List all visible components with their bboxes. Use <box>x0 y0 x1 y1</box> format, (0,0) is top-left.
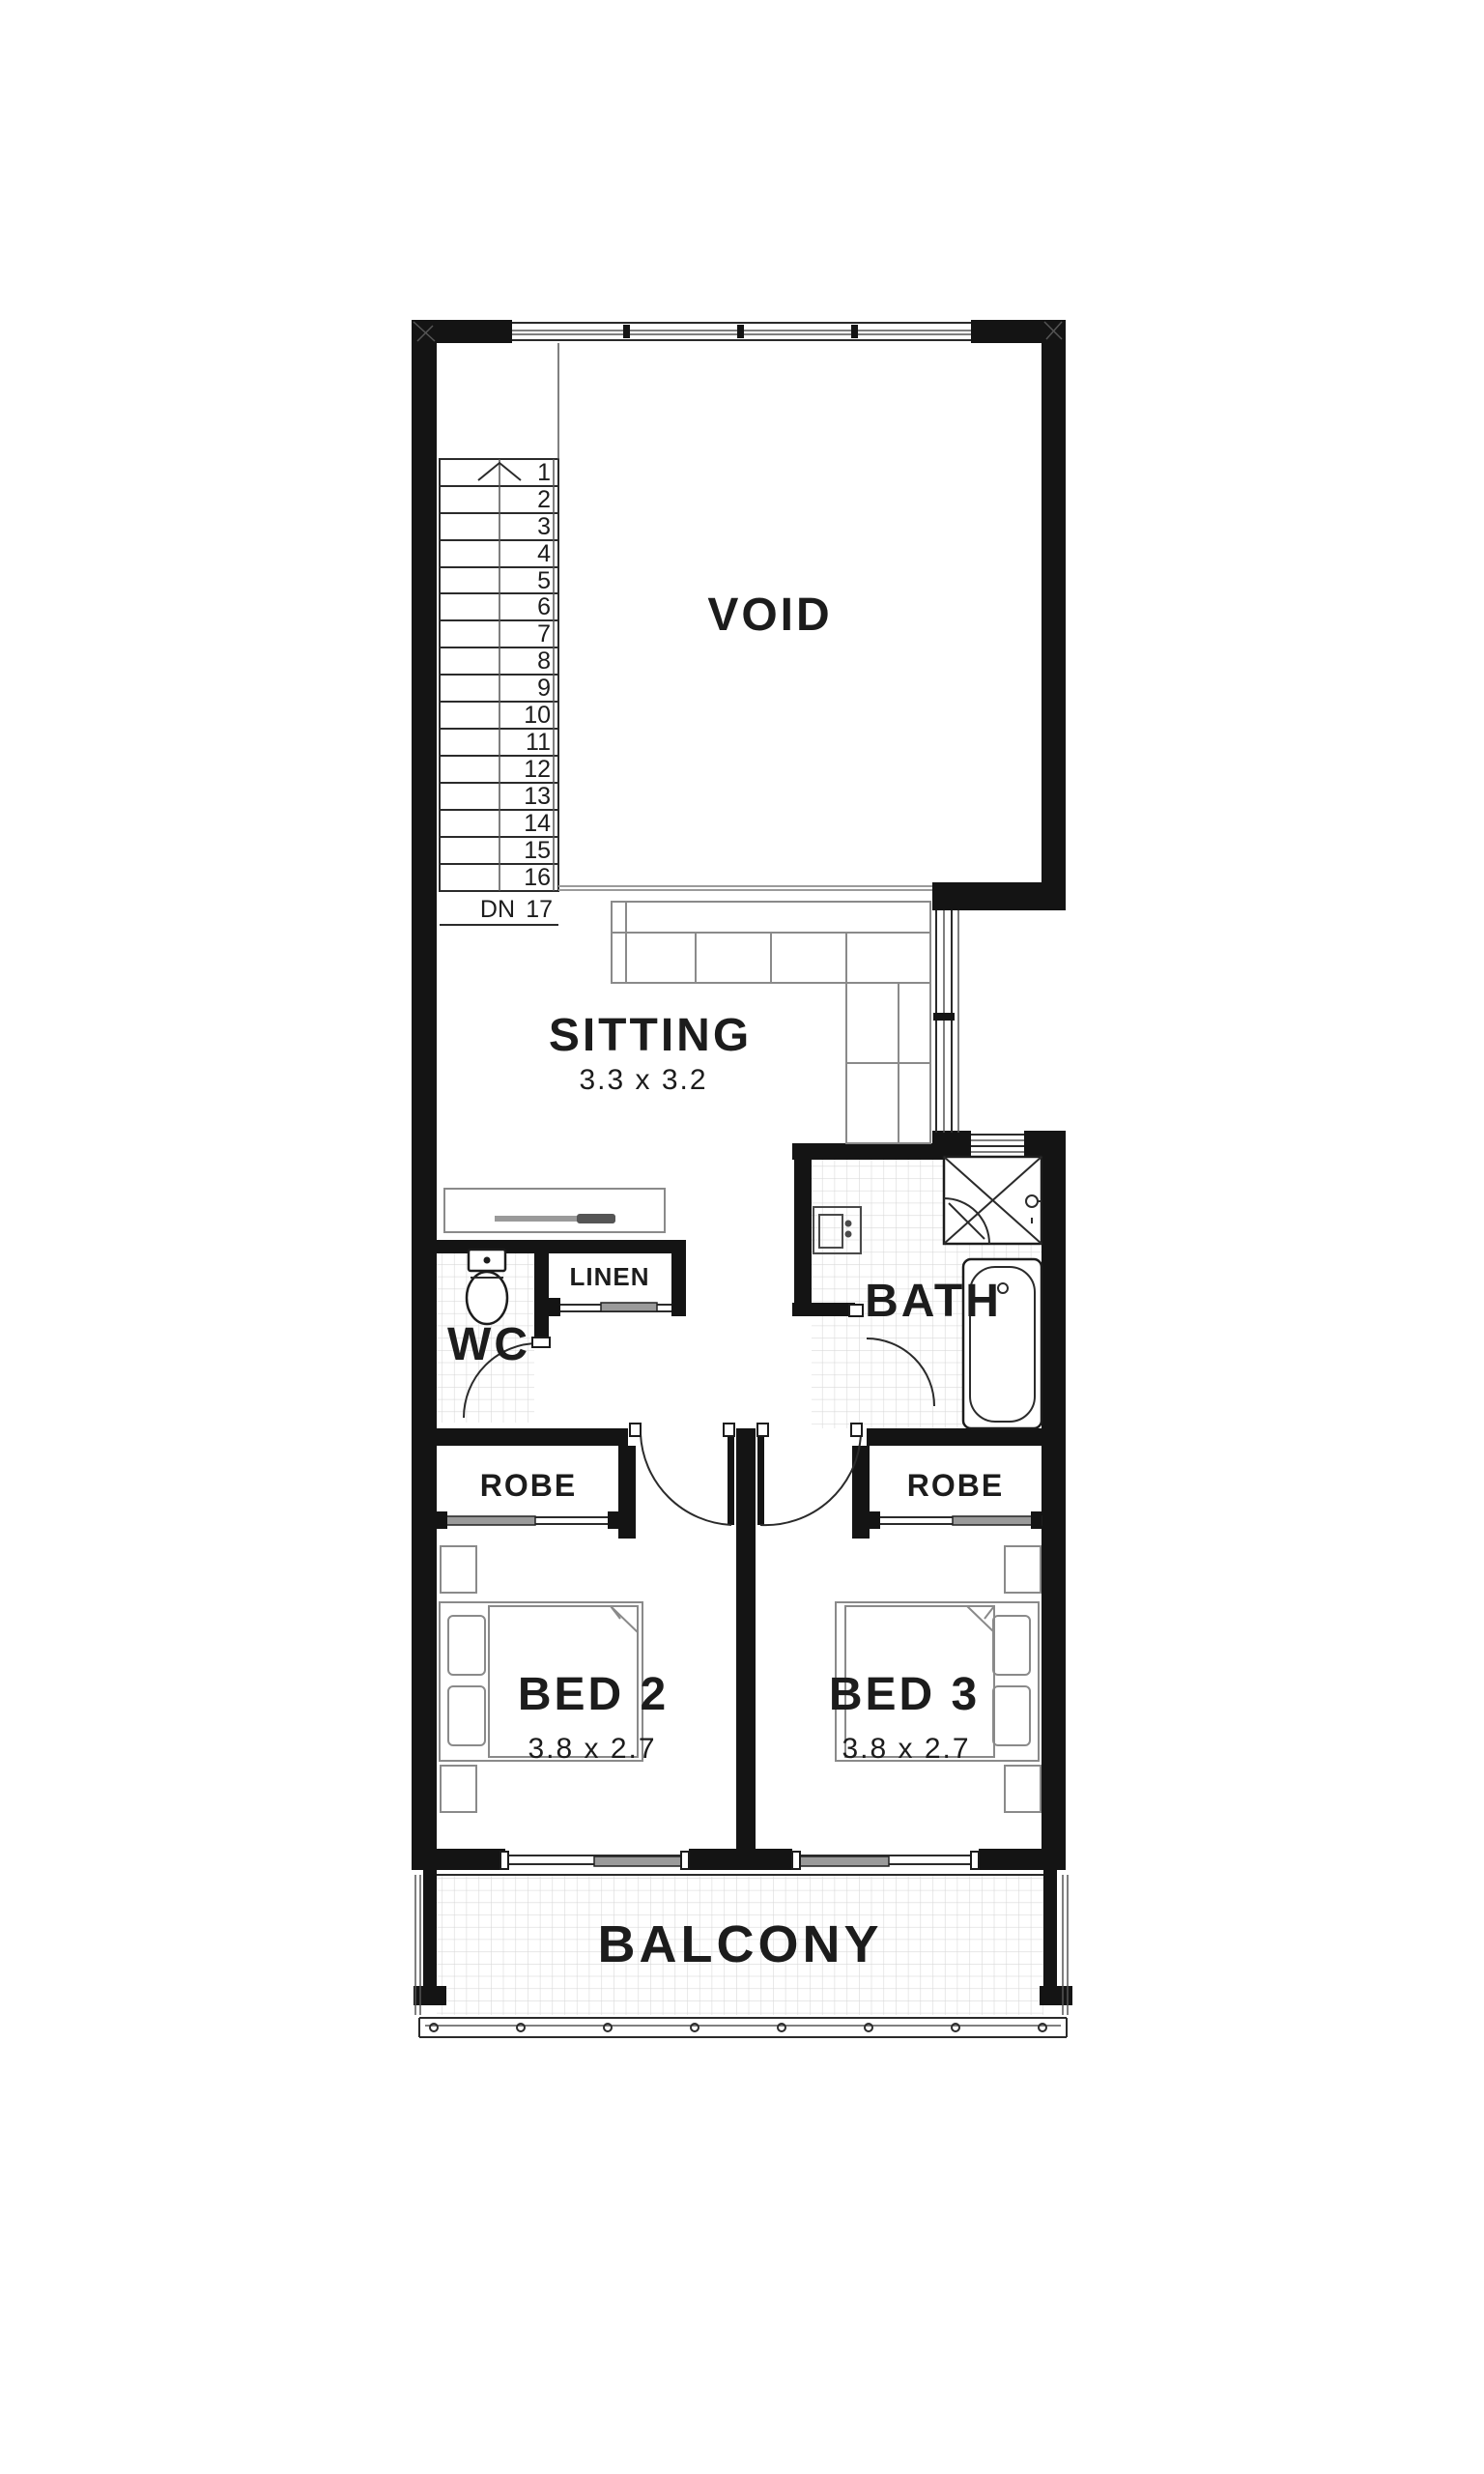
stair-number: 16 <box>524 864 551 891</box>
stair-number: 8 <box>537 647 551 675</box>
bed3-pillow <box>993 1616 1030 1675</box>
shower <box>944 1157 1042 1244</box>
robe-right-top-wall <box>867 1428 1066 1446</box>
wc-right-wall <box>534 1253 549 1342</box>
bed2-dimensions: 3.8 x 2.7 <box>528 1733 656 1765</box>
bath-window <box>971 1135 1024 1152</box>
robe-right-closet <box>870 1511 1042 1529</box>
balcony-side-pier-right <box>1043 1870 1057 1993</box>
wc-label: WC <box>447 1319 530 1370</box>
bed3-dimensions: 3.8 x 2.7 <box>842 1733 970 1765</box>
bed2-pillow <box>448 1686 485 1745</box>
stair-number: 2 <box>537 486 551 513</box>
sitting-dimensions: 3.3 x 3.2 <box>579 1064 707 1096</box>
bed2-side-table-bottom <box>441 1766 476 1812</box>
balcony-wall-pier-right <box>979 1849 1066 1870</box>
stair-number: 1 <box>537 459 551 486</box>
bath-left-wall <box>794 1143 812 1303</box>
robe-left-top-wall <box>437 1428 628 1446</box>
stair-number: 5 <box>537 567 551 594</box>
robe-left-label: ROBE <box>480 1468 577 1503</box>
tv-body <box>577 1214 615 1223</box>
linen-right-return-wall <box>671 1240 686 1316</box>
bed2-pillow <box>448 1616 485 1675</box>
stair-number-17: 17 <box>526 896 553 923</box>
bed3-side-table-bottom <box>1005 1766 1041 1812</box>
stair-down-label: DN <box>480 896 515 923</box>
tv-unit <box>444 1189 665 1232</box>
void-bottom-right-wall <box>932 882 1066 910</box>
linen-label: LINEN <box>570 1262 650 1291</box>
sitting-right-window <box>933 910 958 1133</box>
right-outer-wall-upper <box>1042 320 1066 910</box>
floor-plan-drawing: 1 2 3 4 5 6 7 8 9 10 11 12 13 14 15 16 D… <box>0 0 1484 2474</box>
floor-plan-page: 1 2 3 4 5 6 7 8 9 10 11 12 13 14 15 16 D… <box>0 0 1484 2474</box>
bed2-label: BED 2 <box>518 1669 669 1720</box>
void-opening-edge <box>558 886 932 890</box>
stair-number: 15 <box>524 837 551 864</box>
bed3-sheet-fold <box>967 1606 994 1632</box>
stair-number: 4 <box>537 540 551 567</box>
bed2-side-table-top <box>441 1546 476 1593</box>
top-window <box>512 323 971 340</box>
robe-left-side-wall <box>618 1446 636 1539</box>
bedroom-dividing-wall <box>736 1428 756 1870</box>
sitting-label: SITTING <box>549 1010 752 1061</box>
bed3-door <box>757 1424 862 1525</box>
stair-number: 3 <box>537 513 551 540</box>
stair-number: 11 <box>526 729 551 756</box>
bed3-pillow <box>993 1686 1030 1745</box>
stair-number: 7 <box>537 620 551 647</box>
linen-sliding-door <box>549 1298 671 1316</box>
left-outer-wall <box>412 320 437 1870</box>
stair-number: 12 <box>524 756 551 783</box>
balcony-wall-pier-center <box>689 1849 792 1870</box>
robe-right-label: ROBE <box>907 1468 1004 1503</box>
stair-numbers: 1 2 3 4 5 6 7 8 9 10 11 12 13 14 15 16 D… <box>480 459 553 923</box>
bath-corner-block-right <box>1024 1131 1066 1160</box>
balcony-side-pier-left <box>423 1870 437 1993</box>
robe-right-side-wall <box>852 1446 870 1539</box>
bed2-door <box>630 1424 734 1525</box>
robe-left-closet <box>437 1511 618 1529</box>
staircase: 1 2 3 4 5 6 7 8 9 10 11 12 13 14 15 16 D… <box>440 343 558 925</box>
bath-door-nib-wall <box>792 1303 855 1316</box>
stair-number: 10 <box>524 702 551 729</box>
bed2-sheet-fold <box>611 1606 638 1632</box>
balcony-wall-pier-left <box>426 1849 505 1870</box>
toilet <box>467 1250 507 1324</box>
bed3-side-table-top <box>1005 1546 1041 1593</box>
void-label: VOID <box>707 590 832 641</box>
stair-number: 9 <box>537 675 551 702</box>
stair-number: 14 <box>524 810 551 837</box>
right-outer-wall-lower <box>1042 1131 1066 1870</box>
bed3-label: BED 3 <box>829 1669 980 1720</box>
bath-label: BATH <box>865 1276 1002 1327</box>
stair-number: 6 <box>537 593 551 620</box>
balcony-corner-pier-left <box>414 1986 446 2005</box>
stair-number: 13 <box>524 783 551 810</box>
balcony-label: BALCONY <box>598 1915 883 1973</box>
